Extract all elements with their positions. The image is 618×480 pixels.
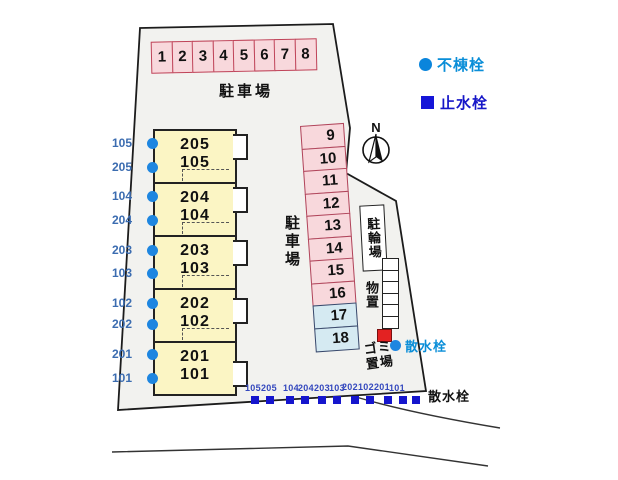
valve-square-icon [286,396,294,404]
hydrant-dot-icon [147,298,158,309]
left-marker-label: 204 [98,213,132,227]
unit-upper-number: 204 [155,189,235,207]
hydrant-dot-icon [147,138,158,149]
bottom-marker-label: 203 [314,383,330,393]
parking-space-1: 1 [151,41,174,73]
valve-square-icon [301,396,309,404]
hydrant-dot-icon [147,349,158,360]
hydrant-dot-icon [147,191,158,202]
unit-204-104: 204 104 [153,182,237,237]
parking-row-top: 1 2 3 4 5 6 7 8 [151,38,317,73]
parking-space-5: 5 [233,40,256,72]
unit-202-102: 202 102 [153,288,237,343]
north-letter: N [371,120,380,135]
bottom-marker-label: 104 [283,383,299,393]
valve-square-icon [333,396,341,404]
bottom-marker-label: 102 [358,382,374,392]
left-marker-label: 104 [98,189,132,203]
valve-square-icon [399,396,407,404]
left-marker-label: 105 [98,136,132,150]
entry-porch [233,298,248,324]
parking-space-4: 4 [212,40,235,72]
valve-square-icon [412,396,420,404]
valve-square-icon [366,396,374,404]
valve-square-icon [318,396,326,404]
unit-upper-number: 205 [155,136,235,154]
entry-path-dashed [182,275,229,287]
entry-path-dashed [182,169,229,181]
road-edge-lower [112,446,488,466]
bottom-marker-label: 202 [342,382,358,392]
valve-square-icon [266,396,274,404]
valve-square-icon [351,396,359,404]
left-marker-label: 103 [98,266,132,280]
legend-valve-square-icon [421,96,434,109]
parking-space-8: 8 [294,38,317,70]
sprinkler-dot-icon [390,340,401,351]
hydrant-dot-icon [147,162,158,173]
legend-hydrant-label: 不棟栓 [437,54,485,75]
bottom-marker-label: 101 [389,383,405,393]
left-marker-label: 201 [98,347,132,361]
hydrant-dot-icon [147,268,158,279]
storage-label: 物置 [362,281,381,309]
bicycle-parking-label: 駐輪場 [363,217,384,260]
parking-space-7: 7 [274,39,297,71]
legend-hydrant-circle-icon [419,58,432,71]
apartment-building: 205 105 204 104 203 103 202 102 201 101 [153,129,237,396]
north-arrow-icon: N [355,120,397,170]
bottom-marker-label: 201 [374,382,390,392]
entry-porch [233,187,248,213]
left-marker-label: 102 [98,296,132,310]
unit-upper-number: 201 [155,348,235,366]
entry-path-dashed [182,222,229,234]
entry-porch [233,134,248,160]
unit-lower-number: 101 [155,366,235,384]
unit-205-105: 205 105 [153,129,237,184]
unit-203-103: 203 103 [153,235,237,290]
site-plan: { "site": { "parking_top": { "label": "駐… [0,0,618,480]
left-marker-label: 202 [98,317,132,331]
parking-space-6: 6 [253,39,276,71]
parking-top-label: 駐車場 [219,80,273,101]
parking-side-label: 駐車場 [281,215,302,269]
left-marker-label: 205 [98,160,132,174]
legend-valve-label: 止水栓 [440,92,488,113]
unit-upper-number: 202 [155,295,235,313]
parking-space-18: 18 [314,325,360,352]
entry-porch [233,240,248,266]
left-marker-label: 203 [98,243,132,257]
valve-square-icon [384,396,392,404]
sprinkler-bottom-label: 散水栓 [428,386,470,405]
parking-space-2: 2 [171,41,194,73]
left-marker-label: 101 [98,371,132,385]
hydrant-dot-icon [147,245,158,256]
sprinkler-mid-label: 散水栓 [405,336,447,355]
bottom-marker-label: 105 [245,383,261,393]
bottom-marker-label: 204 [298,383,314,393]
valve-square-icon [251,396,259,404]
unit-upper-number: 203 [155,242,235,260]
storage-locker-cell [382,316,399,329]
hydrant-dot-icon [147,319,158,330]
hydrant-dot-icon [147,215,158,226]
hydrant-dot-icon [147,373,158,384]
unit-201-101: 201 101 [153,341,237,396]
entry-path-dashed [182,328,229,340]
parking-space-3: 3 [192,40,215,72]
bottom-marker-label: 205 [261,383,277,393]
